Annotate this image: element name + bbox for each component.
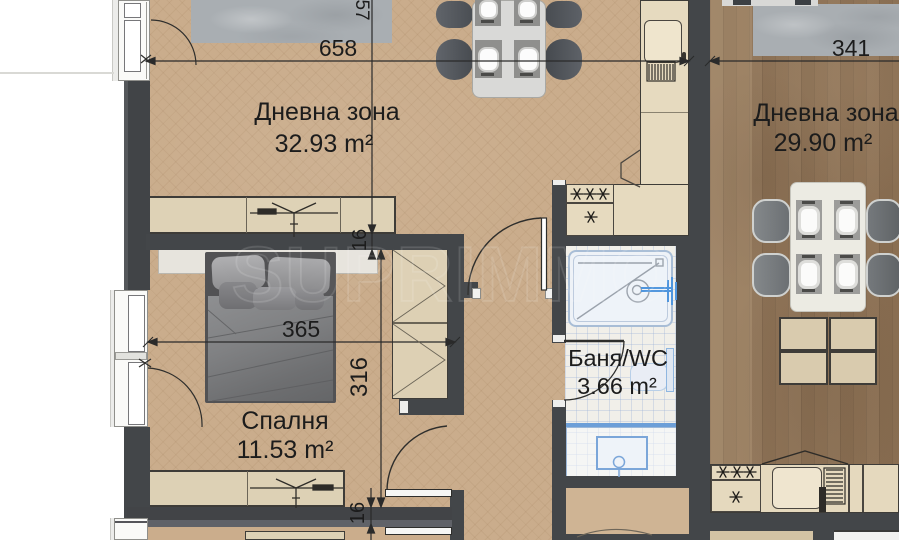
svg-text:316: 316 <box>346 357 373 397</box>
svg-text:3.66 m²: 3.66 m² <box>577 373 657 399</box>
svg-text:Дневна зона: Дневна зона <box>254 98 399 126</box>
svg-text:658: 658 <box>319 35 357 61</box>
svg-text:11.53 m²: 11.53 m² <box>237 436 334 464</box>
svg-text:Дневна зона: Дневна зона <box>753 99 898 127</box>
svg-text:16: 16 <box>349 229 371 251</box>
svg-text:365: 365 <box>282 316 320 342</box>
svg-text:32.93 m²: 32.93 m² <box>275 130 374 158</box>
svg-text:16: 16 <box>347 502 369 524</box>
svg-text:29.90 m²: 29.90 m² <box>774 129 873 157</box>
svg-text:Спалня: Спалня <box>241 407 328 435</box>
svg-text:341: 341 <box>832 35 870 61</box>
svg-text:Баня/WC: Баня/WC <box>568 345 668 371</box>
svg-text:57: 57 <box>351 0 372 21</box>
svg-text:SUPRIMMO: SUPRIMMO <box>232 230 673 318</box>
